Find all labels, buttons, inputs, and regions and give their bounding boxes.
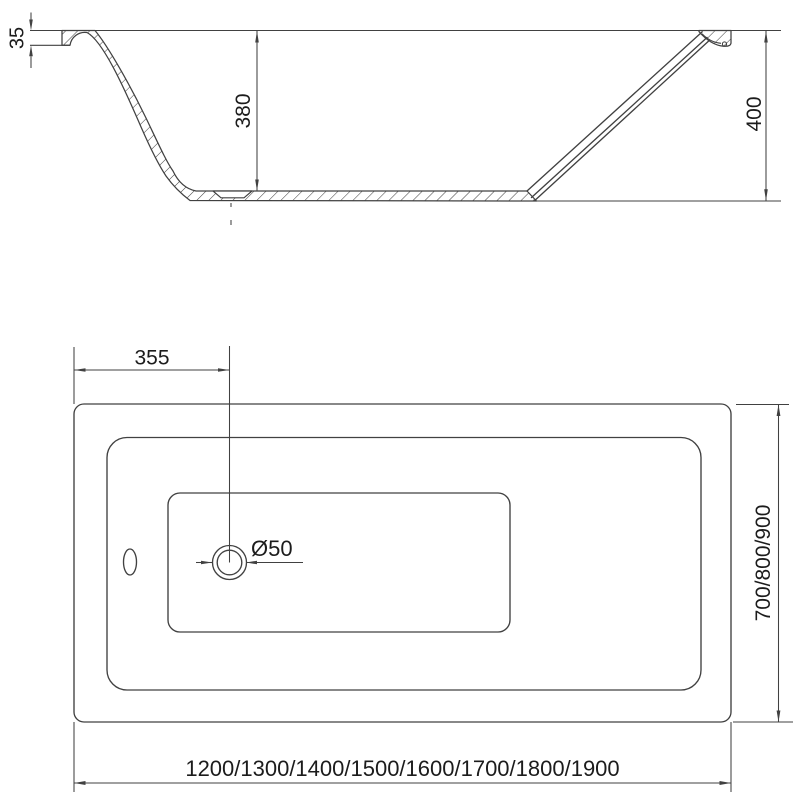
dim-380-arrowhead-bottom (255, 180, 259, 192)
dim-380-label: 380 (232, 93, 255, 128)
dim-35-arrowhead-bottom (29, 45, 33, 56)
drain-dim-arrowhead-right (246, 561, 257, 565)
dim-length-label: 1200/1300/1400/1500/1600/1700/1800/1900 (185, 756, 619, 781)
dim-355-arrowhead-left (74, 368, 86, 372)
backrest-wall-line-2 (535, 40, 710, 201)
drain-diameter-label: Ø50 (251, 536, 293, 561)
plan-view: 355 Ø50 700/800/900 1200/1300/1400/1500/… (74, 346, 793, 792)
backrest-wall-line-1 (532, 38, 708, 198)
dim-35-arrowhead-top (29, 20, 33, 31)
overflow-hole (124, 549, 137, 575)
dim-width-arrowhead-bottom (777, 711, 781, 723)
section-view: 35 380 400 (7, 13, 782, 226)
dim-400-label: 400 (743, 96, 766, 131)
tub-basin-bottom-edge (168, 493, 510, 632)
dim-400-arrowhead-top (764, 31, 768, 43)
dim-355-arrowhead-right (218, 368, 230, 372)
dim-400-arrowhead-bottom (764, 189, 768, 201)
dim-380-arrowhead-top (255, 31, 259, 43)
backrest-inner-line (527, 32, 702, 191)
bathtub-technical-drawing: 35 380 400 (0, 0, 800, 800)
drain-dim-arrowhead-left (201, 561, 212, 565)
dim-width-arrowhead-top (777, 405, 781, 417)
dim-35-label: 35 (7, 27, 29, 49)
tub-section-body (62, 31, 537, 202)
dim-length-arrowhead-left (74, 781, 86, 785)
tub-outer-edge (74, 404, 731, 722)
dim-length-arrowhead-right (720, 781, 732, 785)
tub-rim-inner-edge (107, 438, 701, 691)
dim-355-label: 355 (134, 347, 169, 370)
dim-width-label: 700/800/900 (752, 505, 775, 622)
